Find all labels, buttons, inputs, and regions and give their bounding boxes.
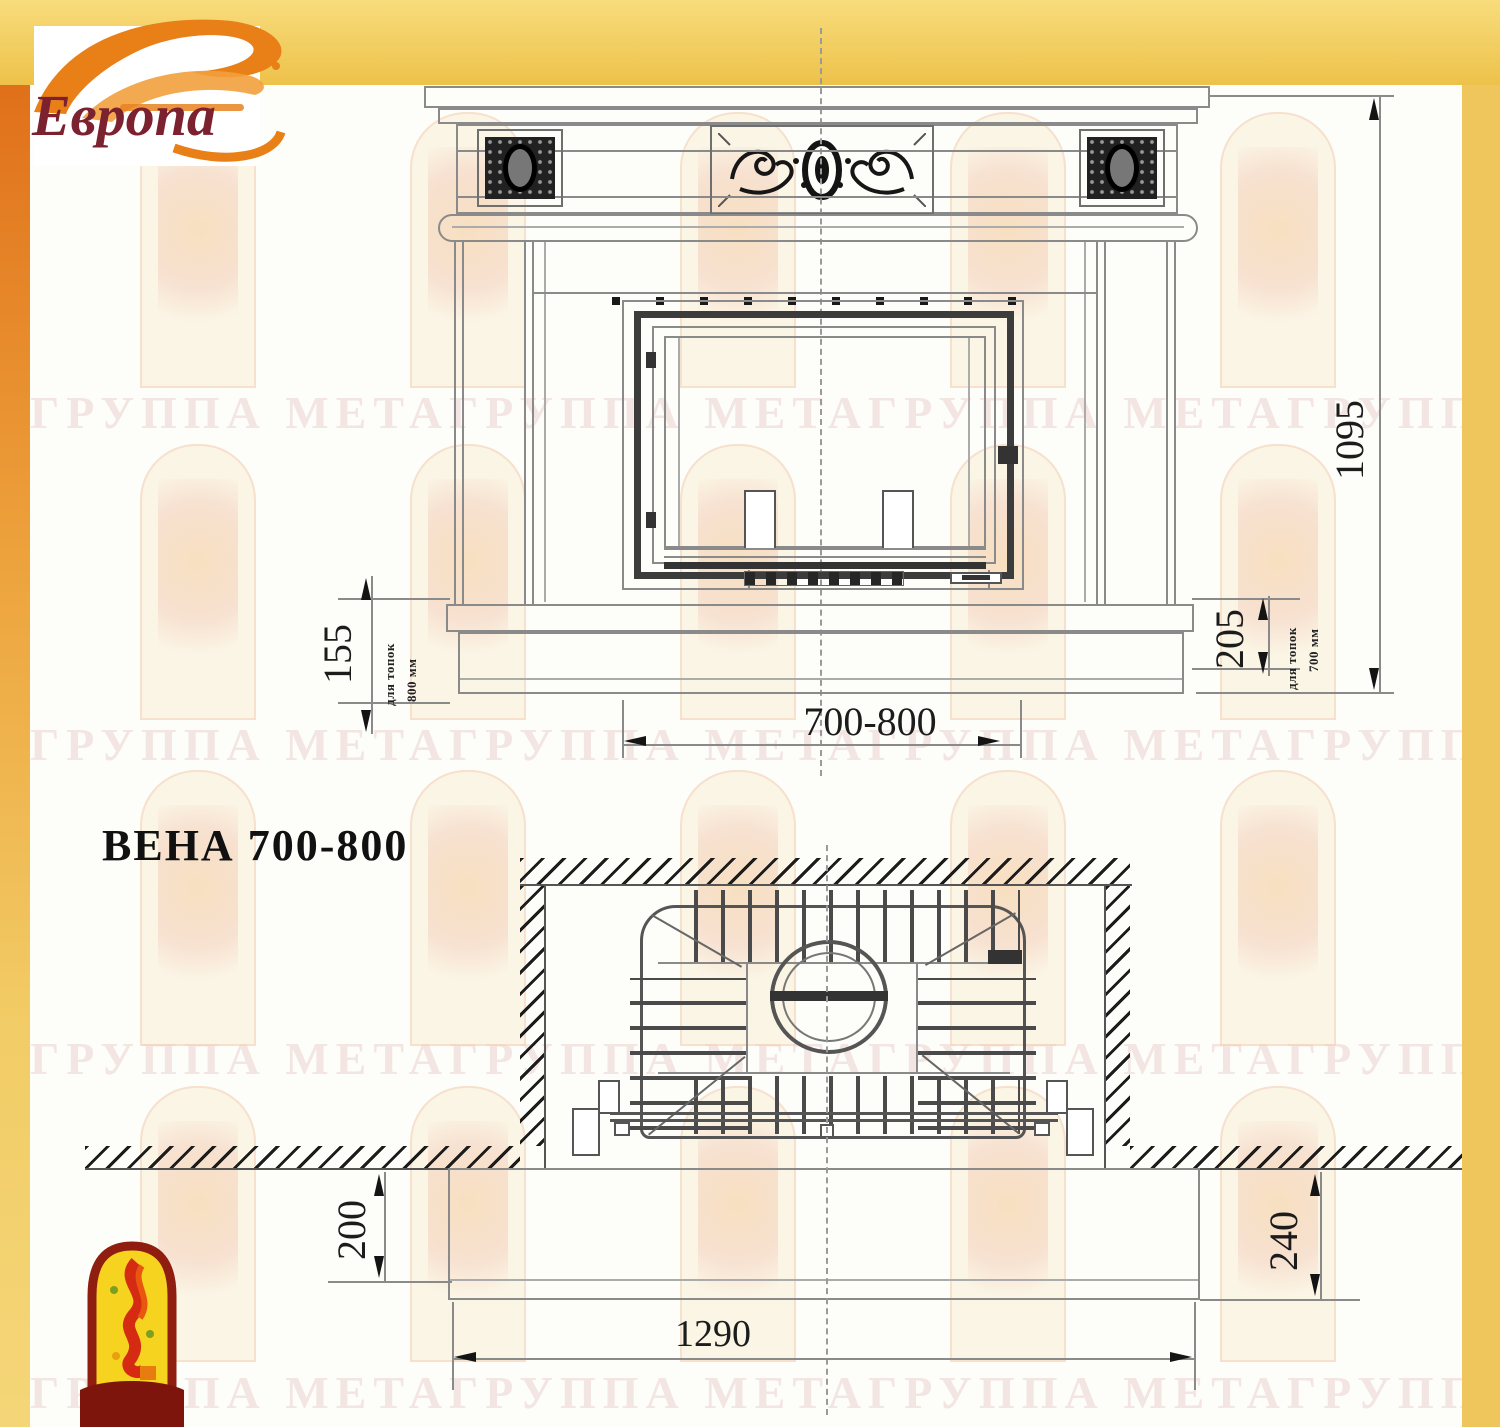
- corner-emblem: [80, 1238, 184, 1427]
- dim-note-left-2: 800 мм: [404, 606, 420, 702]
- dim-hearth-height-left: 155: [314, 598, 361, 710]
- dim-wall-offset-left: 200: [328, 1180, 375, 1280]
- firebird-emblem-icon: [80, 1238, 184, 1427]
- dim-wall-offset-right: 240: [1260, 1186, 1307, 1296]
- dim-overall-height: 1095: [1326, 330, 1373, 550]
- dim-note-left-1: для топок: [382, 594, 398, 706]
- dim-hearth-height-right: 205: [1206, 594, 1253, 684]
- dimension-labels: ВЕНА 700-800 1095 700-800 155 для топок …: [0, 0, 1500, 1427]
- logo-text: Европа: [32, 82, 216, 149]
- page: ГРУППА МЕТАГРУППА МЕТАГРУППА МЕТАГРУППА …: [0, 0, 1500, 1427]
- dim-note-right-1: для топок: [1284, 590, 1300, 690]
- dim-note-right-2: 700 мм: [1306, 596, 1322, 672]
- model-title: ВЕНА 700-800: [102, 820, 408, 871]
- logo: Европа: [24, 4, 299, 174]
- dim-firebox-width-range: 700-800: [740, 698, 1000, 745]
- dim-hearth-width: 1290: [598, 1312, 828, 1356]
